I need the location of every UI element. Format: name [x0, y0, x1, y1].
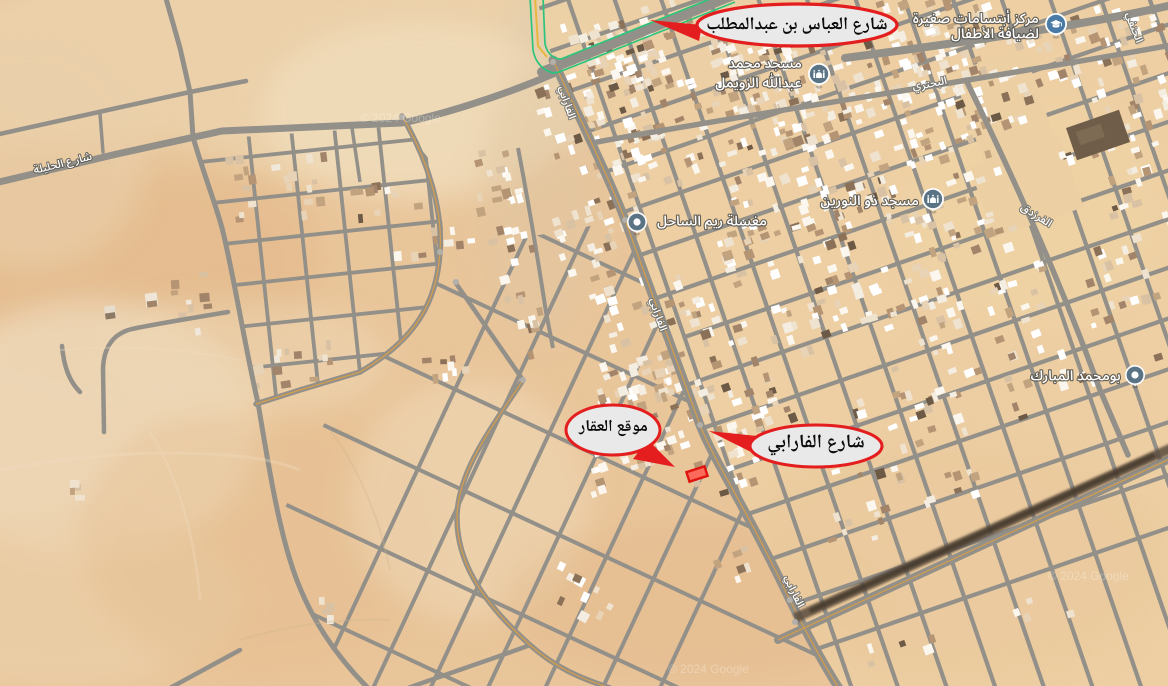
svg-text:© 2024 Google: © 2024 Google — [1048, 569, 1129, 583]
svg-text:© 2024 Google: © 2024 Google — [668, 662, 749, 676]
svg-text:© 2024 Google: © 2024 Google — [360, 111, 441, 125]
